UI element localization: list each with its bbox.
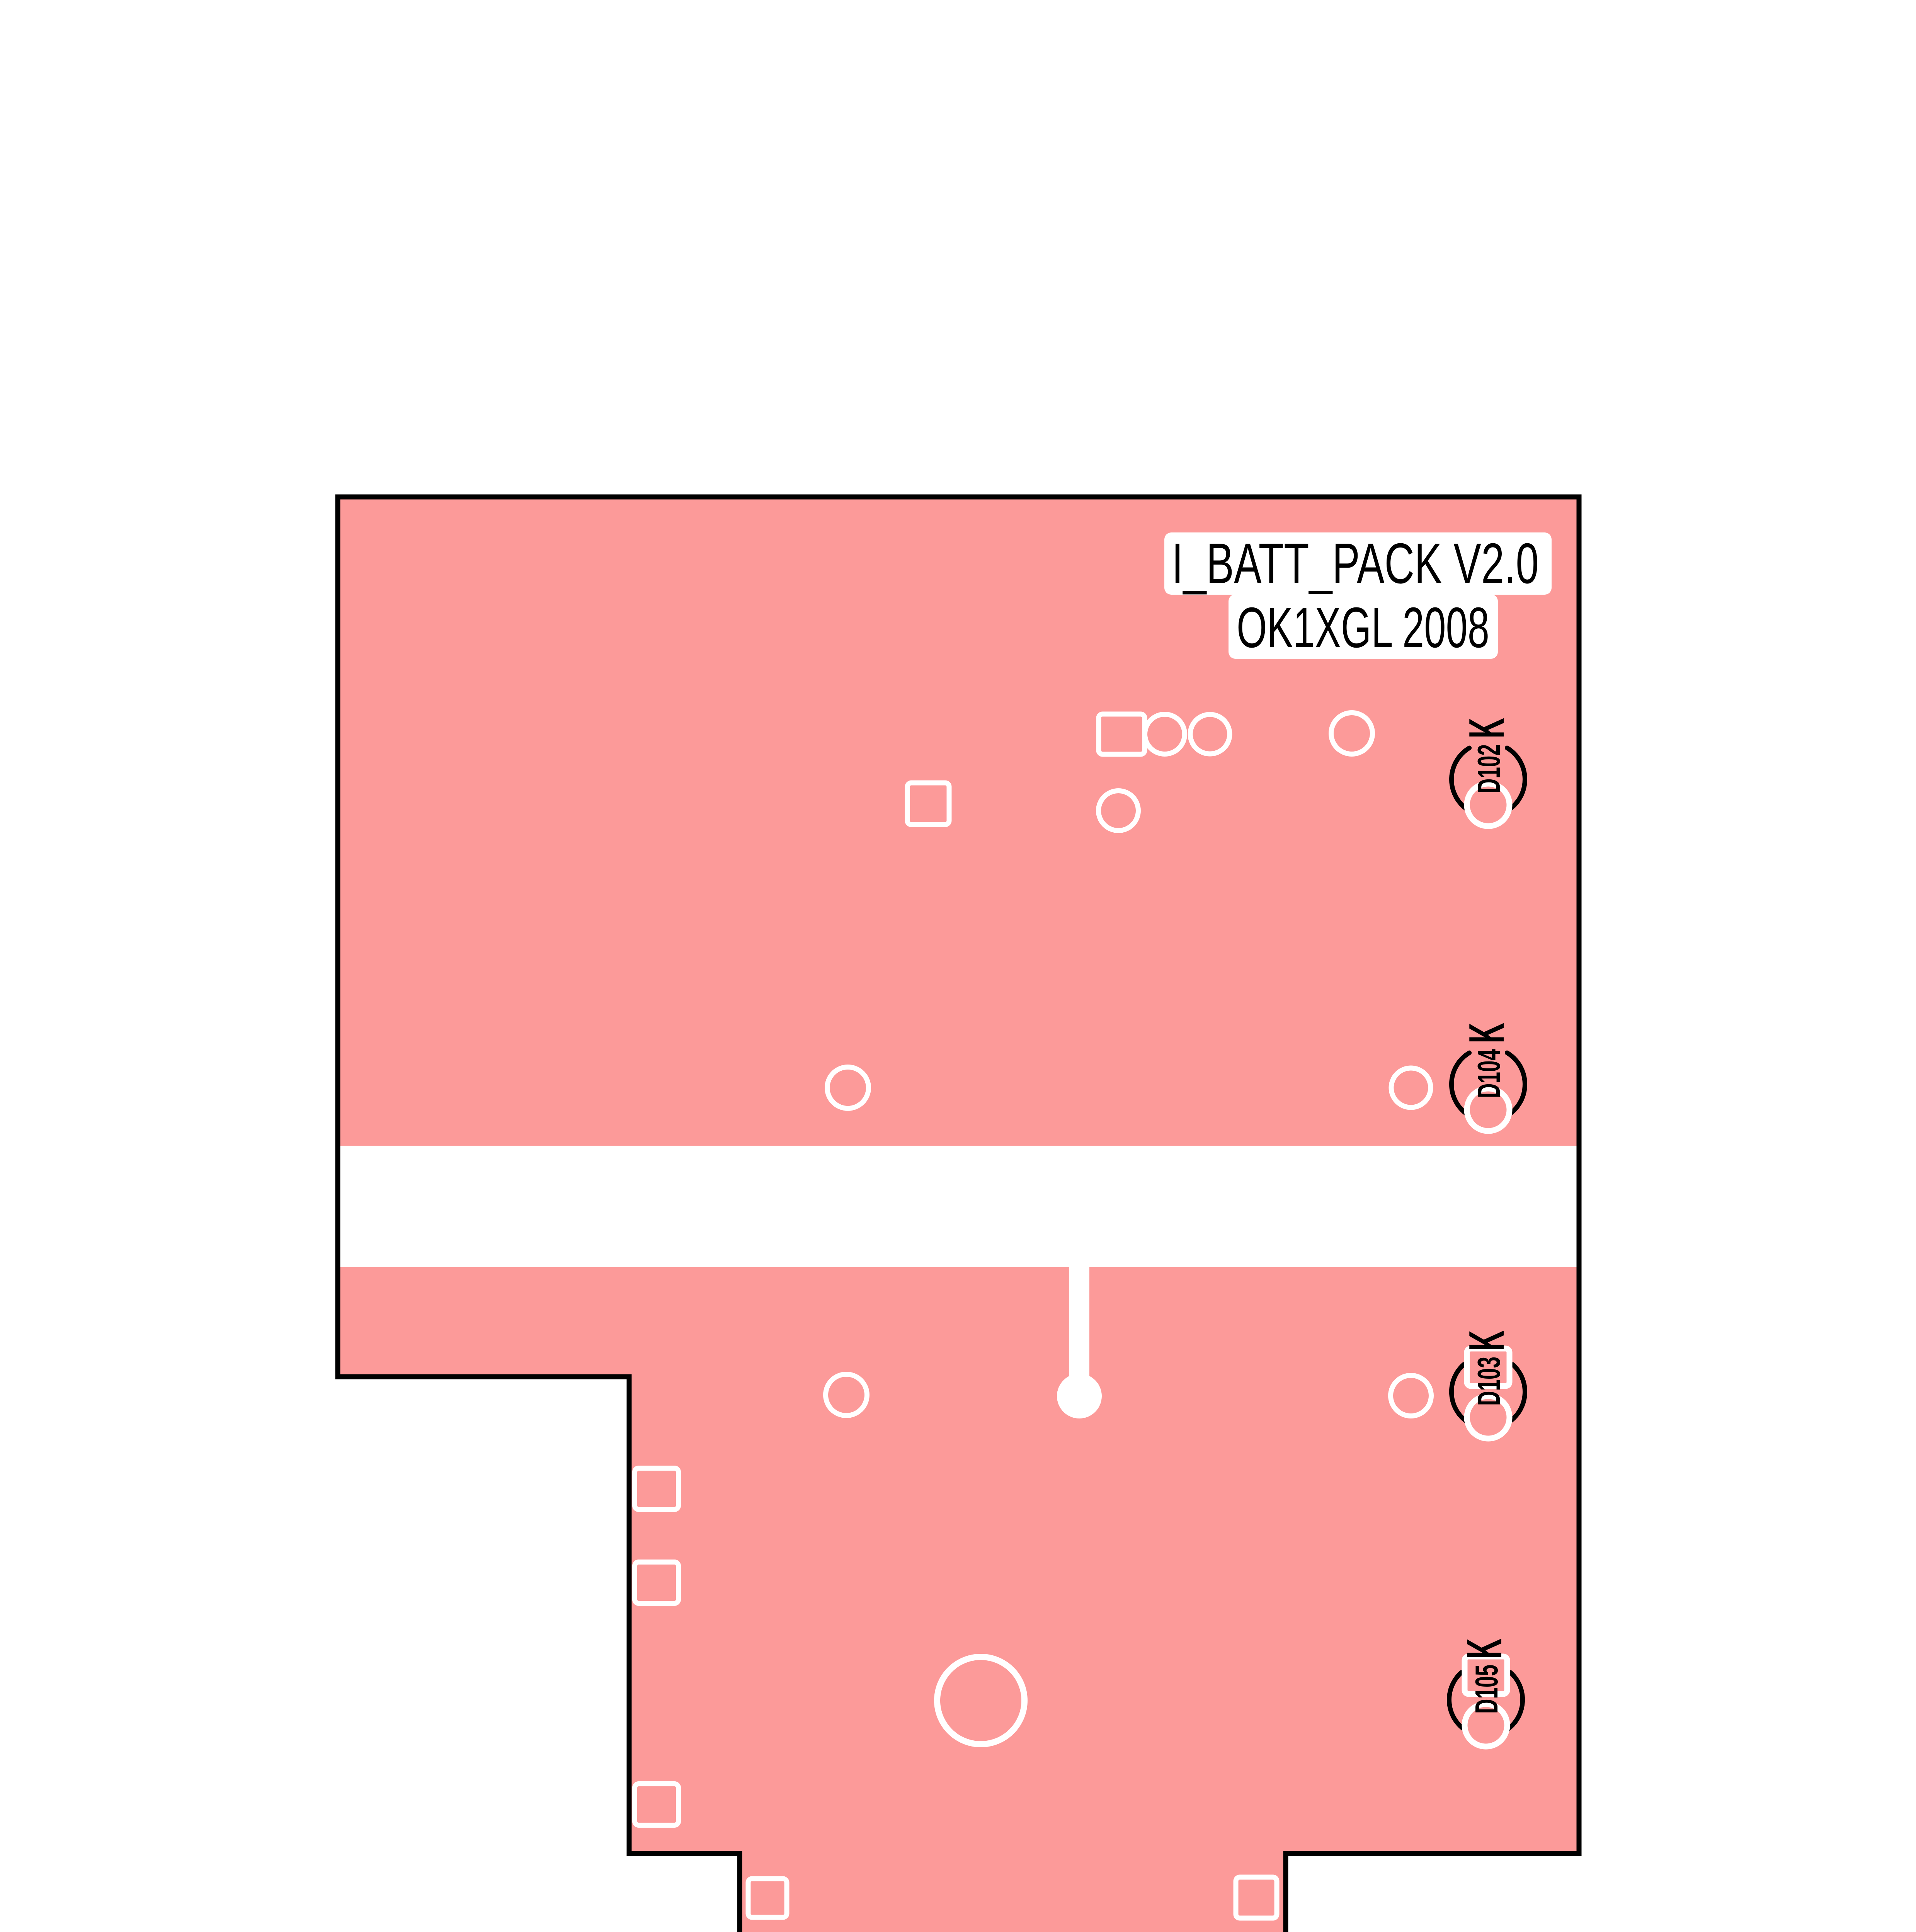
svg-text:K: K — [1459, 1023, 1514, 1043]
svg-text:K: K — [1457, 1638, 1512, 1659]
svg-text:D105: D105 — [1468, 1665, 1504, 1714]
svg-text:K: K — [1459, 718, 1514, 738]
svg-text:K: K — [1459, 1330, 1514, 1351]
svg-text:D103: D103 — [1471, 1357, 1507, 1406]
svg-text:D102: D102 — [1471, 744, 1507, 793]
svg-text:I_BATT_PACK V2.0: I_BATT_PACK V2.0 — [1172, 532, 1539, 595]
svg-text:OK1XGL 2008: OK1XGL 2008 — [1237, 596, 1489, 660]
svg-text:D104: D104 — [1471, 1049, 1507, 1098]
